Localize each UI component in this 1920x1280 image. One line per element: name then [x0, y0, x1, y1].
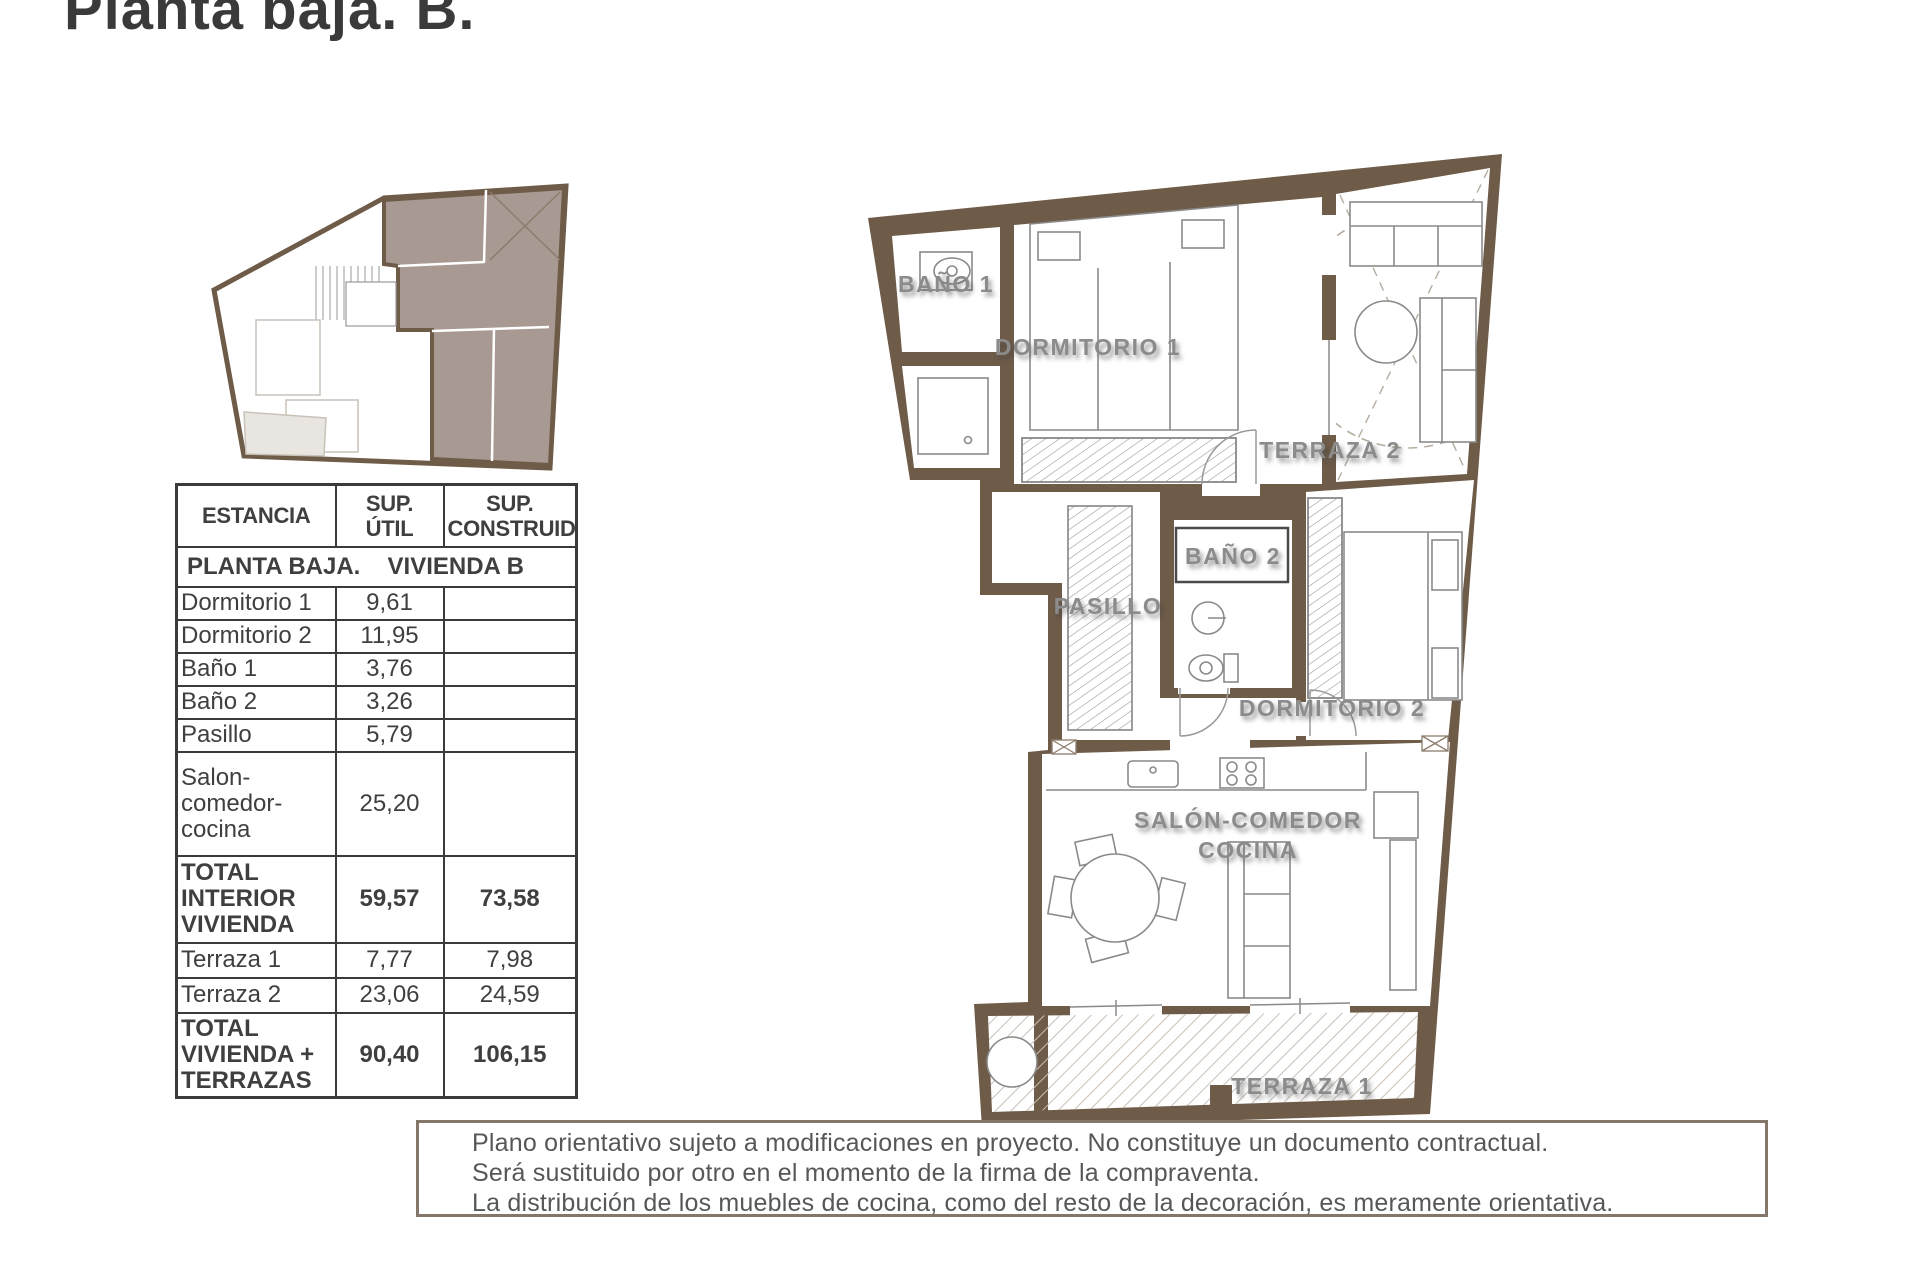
disclaimer-box: Plano orientativo sujeto a modificacione… — [416, 1120, 1768, 1217]
closet2-icon — [1308, 498, 1342, 698]
bed1-icon — [1030, 205, 1238, 430]
terrace-post — [1210, 1085, 1232, 1113]
disclaimer-line: Será sustituido por otro en el momento d… — [472, 1158, 1755, 1188]
header-estancia: ESTANCIA — [177, 485, 336, 547]
page: { "title": "Planta baja. B.", "table": {… — [0, 0, 1920, 1280]
toilet-icon — [1189, 654, 1238, 682]
basin2-icon — [1192, 602, 1226, 634]
sideboard-icon — [1390, 840, 1416, 990]
closet1-icon — [1022, 438, 1236, 482]
terrace-table-icon — [1355, 301, 1417, 363]
page-title: Planta baja. B. — [64, 0, 475, 43]
table-row: Baño 1 3,76 — [177, 653, 577, 686]
label-salon-1: SALÓN-COMEDOR — [1134, 806, 1362, 833]
header-sup-construida: SUP. CONSTRUIDA — [444, 485, 577, 547]
terrace-sofa-right-icon — [1420, 298, 1476, 442]
table-row: Dormitorio 1 9,61 — [177, 587, 577, 620]
table-row-total-vivienda: TOTAL VIVIENDA + TERRAZAS 90,40 106,15 — [177, 1013, 577, 1098]
table-row: Terraza 1 7,77 7,98 — [177, 943, 577, 978]
label-terraza1: TERRAZA 1 — [1231, 1073, 1373, 1099]
header-sup-util: SUP. ÚTIL — [336, 485, 444, 547]
key-plan-terrace-other — [244, 412, 326, 456]
floor-plan: BAÑO 1 DORMITORIO 1 TERRAZA 2 BAÑO 2 PAS… — [830, 140, 1520, 1145]
area-table: ESTANCIA SUP. ÚTIL SUP. CONSTRUIDA PLANT… — [175, 483, 578, 1099]
table-row: Dormitorio 2 11,95 — [177, 620, 577, 653]
terrace-sofa-top-icon — [1350, 202, 1482, 266]
label-dormitorio2: DORMITORIO 2 — [1239, 695, 1425, 721]
section-left: PLANTA BAJA. — [187, 554, 360, 580]
label-bano1: BAÑO 1 — [898, 270, 994, 297]
disclaimer-line: La distribución de los muebles de cocina… — [472, 1188, 1755, 1218]
table-header-row: ESTANCIA SUP. ÚTIL SUP. CONSTRUIDA — [177, 485, 577, 547]
table-row: Terraza 2 23,06 24,59 — [177, 978, 577, 1013]
table-row: Pasillo 5,79 — [177, 719, 577, 752]
label-salon-2: COCINA — [1198, 837, 1298, 863]
label-bano2: BAÑO 2 — [1185, 542, 1281, 569]
bed2-icon — [1344, 532, 1462, 700]
label-dormitorio1: DORMITORIO 1 — [995, 334, 1181, 360]
table-row: Baño 2 3,26 — [177, 686, 577, 719]
table-section-row: PLANTA BAJA. VIVIENDA B — [177, 547, 577, 587]
key-plan-stair-landing — [346, 282, 396, 326]
table-row-total-interior: TOTAL INTERIOR VIVIENDA 59,57 73,58 — [177, 856, 577, 943]
key-plan — [198, 170, 598, 492]
table-row: Salon-comedor-cocina 25,20 — [177, 752, 577, 856]
shower-icon — [918, 378, 988, 454]
sofa-icon — [1228, 842, 1290, 998]
fridge-icon — [1374, 792, 1418, 838]
label-terraza2: TERRAZA 2 — [1259, 437, 1401, 463]
disclaimer-line: Plano orientativo sujeto a modificacione… — [472, 1128, 1755, 1158]
laundry-icon — [987, 1037, 1037, 1087]
label-pasillo: PASILLO — [1054, 593, 1162, 619]
dining-table-icon — [1048, 834, 1185, 962]
section-right: VIVIENDA B — [388, 554, 524, 580]
